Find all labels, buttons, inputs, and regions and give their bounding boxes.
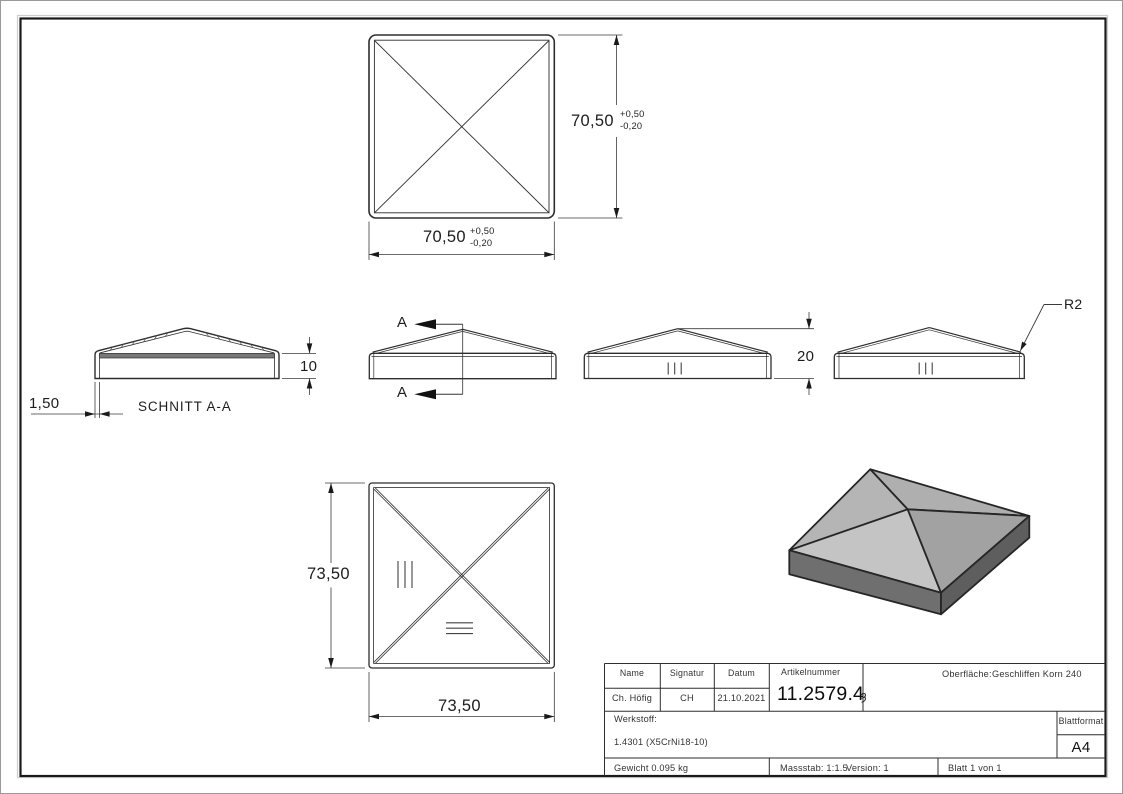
section-cut-band <box>100 353 275 358</box>
titleblock-version: Version: 1 <box>846 764 889 773</box>
titleblock-material-label: Werkstoff: <box>614 715 657 724</box>
section-title: SCHNITT A-A <box>138 400 232 414</box>
drawing-sheet: 70,50 +0,50 -0,20 70,50 +0,50 -0,20 1,50… <box>0 0 1123 794</box>
dim-top-width-tol-minus: -0,20 <box>470 239 492 248</box>
titleblock-material-value: 1.4301 (X5CrNi18-10) <box>614 738 708 747</box>
cut-label-bottom: A <box>397 385 407 400</box>
dim-bottom-height: 73,50 <box>307 566 350 583</box>
titleblock-date-header: Datum <box>714 669 769 678</box>
dim-top-width: 70,50 <box>423 229 466 246</box>
titleblock-article-suffix: ȝ <box>861 690 867 703</box>
titleblock-signature-value: CH <box>660 694 714 703</box>
dim-top-width-tol-plus: +0,50 <box>470 227 495 236</box>
titleblock-article-header: Artikelnummer <box>781 668 840 677</box>
titleblock-format-label: Blattformat <box>1057 717 1105 726</box>
titleblock-weight: Gewicht 0.095 kg <box>614 764 688 773</box>
titleblock-surface-value: Geschliffen Korn 240 <box>992 670 1082 679</box>
titleblock-sheet-count: Blatt 1 von 1 <box>948 764 1002 773</box>
dim-top-height-tol-minus: -0,20 <box>620 122 642 131</box>
cut-label-top: A <box>397 315 407 330</box>
dim-top-height-tol-plus: +0,50 <box>620 110 645 119</box>
titleblock-article-number: 11.2579.4 <box>777 685 864 705</box>
titleblock-name-header: Name <box>604 669 660 678</box>
dim-corner-radius: R2 <box>1064 297 1083 311</box>
titleblock-scale: Massstab: 1:1.5 <box>780 764 848 773</box>
titleblock-name-value: Ch. Höfig <box>604 694 660 703</box>
dim-bottom-width: 73,50 <box>438 698 481 715</box>
dim-top-height: 70,50 <box>571 113 614 130</box>
dim-skirt-height: 10 <box>300 359 317 374</box>
dim-total-height: 20 <box>797 349 814 364</box>
titleblock-signature-header: Signatur <box>660 669 714 678</box>
dim-wall-thickness: 1,50 <box>29 396 59 411</box>
titleblock-surface-label: Oberfläche: <box>942 670 992 679</box>
titleblock-date-value: 21.10.2021 <box>714 694 769 703</box>
titleblock-format-value: A4 <box>1057 740 1105 755</box>
